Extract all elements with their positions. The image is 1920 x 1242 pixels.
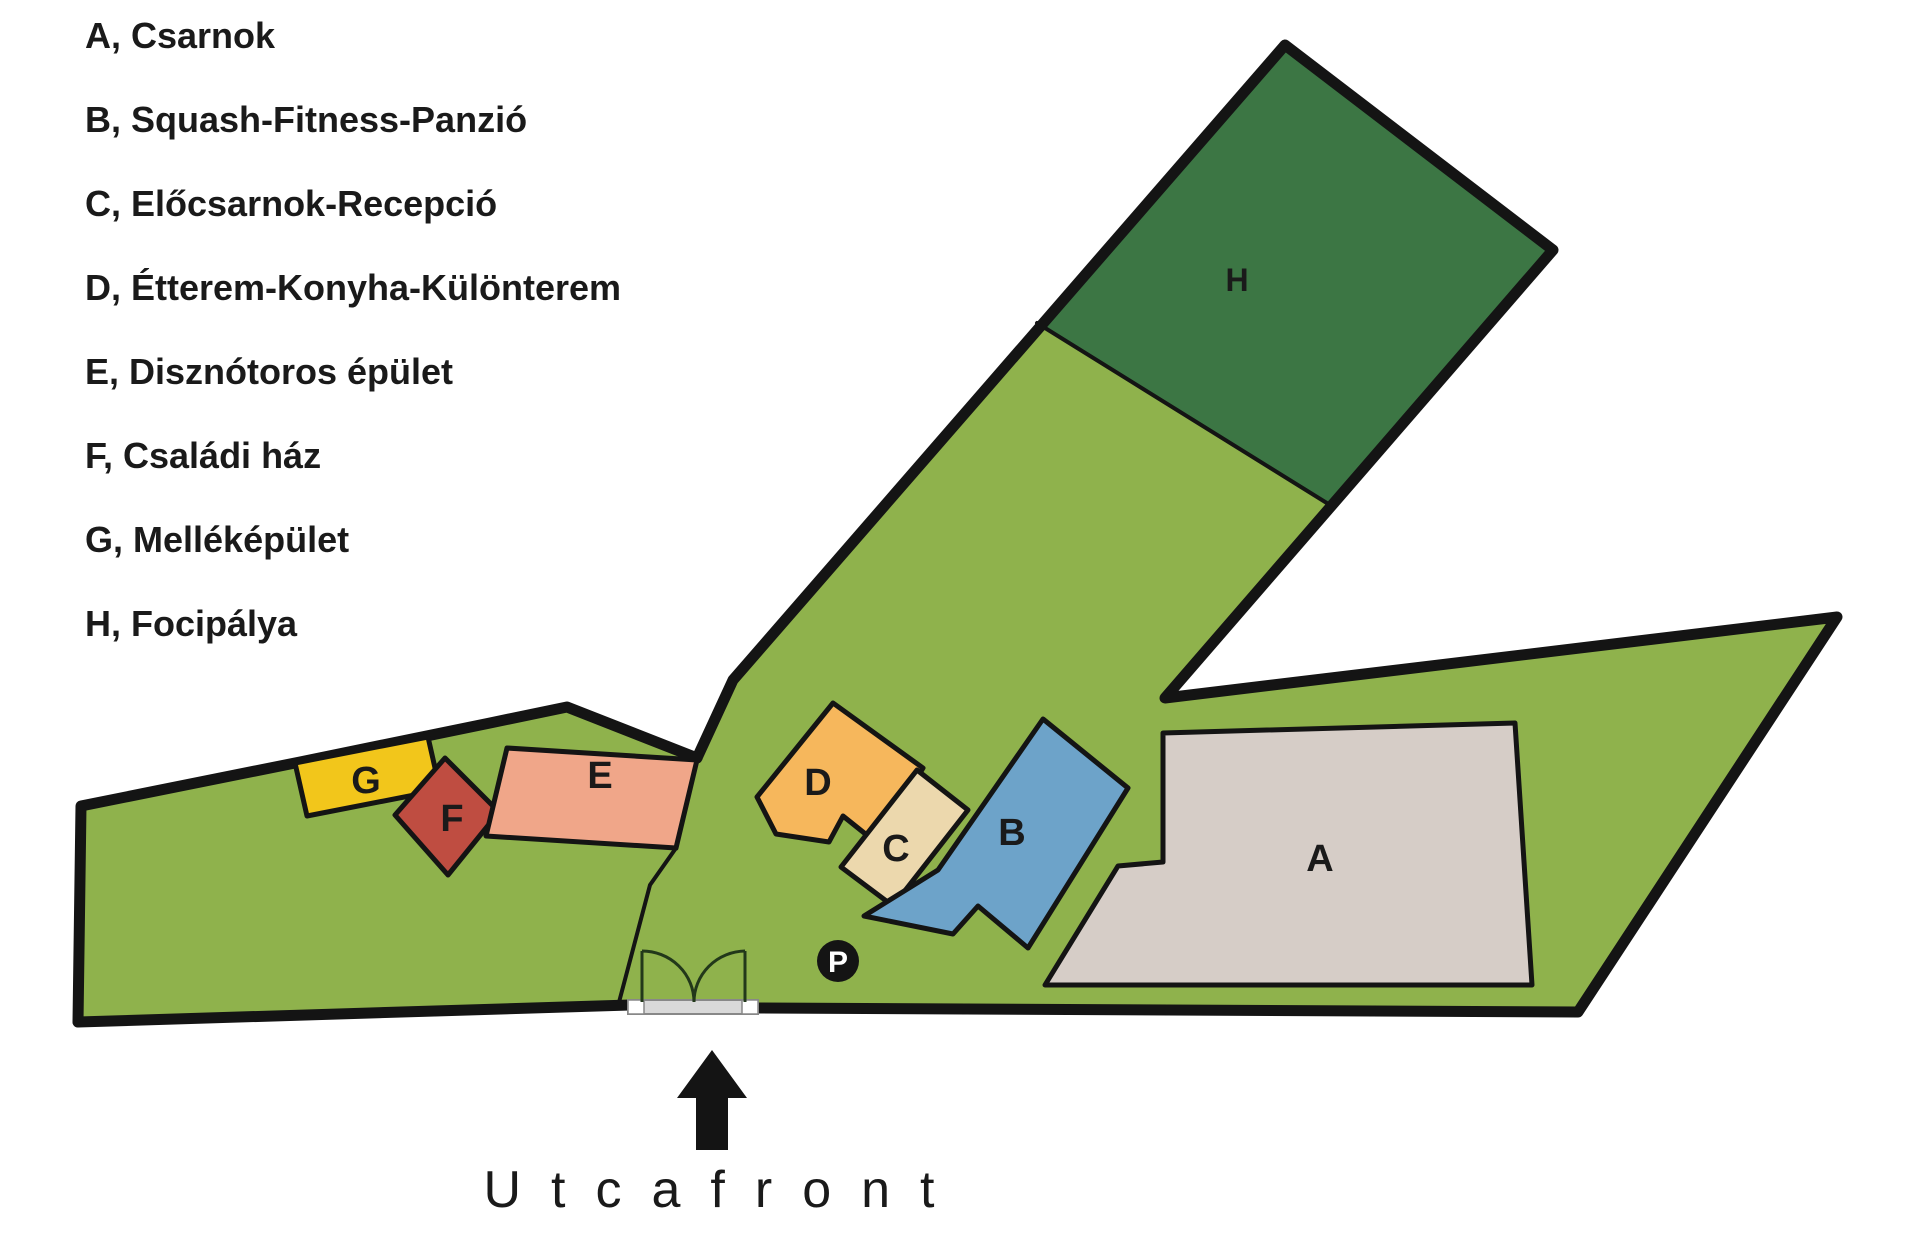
legend-item-f: F, Családi ház <box>85 436 321 476</box>
entrance-arrow-icon <box>677 1050 747 1150</box>
parking-icon-label: P <box>828 946 848 979</box>
site-plan-page: GFEDCBAHP A, Csarnok B, Squash-Fitness-P… <box>0 0 1920 1242</box>
legend-item-c: C, Előcsarnok-Recepció <box>85 184 497 224</box>
legend-item-d: D, Étterem-Konyha-Különterem <box>85 268 621 308</box>
building-a-label: A <box>1306 838 1333 880</box>
building-d-label: D <box>804 762 831 804</box>
building-f-label: F <box>440 798 463 840</box>
legend-item-h: H, Focipálya <box>85 604 297 644</box>
legend-item-b: B, Squash-Fitness-Panzió <box>85 100 527 140</box>
gate-threshold-end-right <box>742 1000 758 1014</box>
building-b-label: B <box>998 812 1025 854</box>
building-g-label: G <box>351 760 381 802</box>
football-field-label: H <box>1225 262 1248 298</box>
gate-threshold <box>628 1000 758 1014</box>
building-e-label: E <box>587 755 612 797</box>
building-c-label: C <box>882 828 909 870</box>
legend-item-g: G, Melléképület <box>85 520 349 560</box>
legend-item-a: A, Csarnok <box>85 16 275 56</box>
legend-item-e: E, Disznótoros épület <box>85 352 453 392</box>
street-label: Utcafront <box>484 1160 965 1220</box>
gate-threshold-end-left <box>628 1000 644 1014</box>
